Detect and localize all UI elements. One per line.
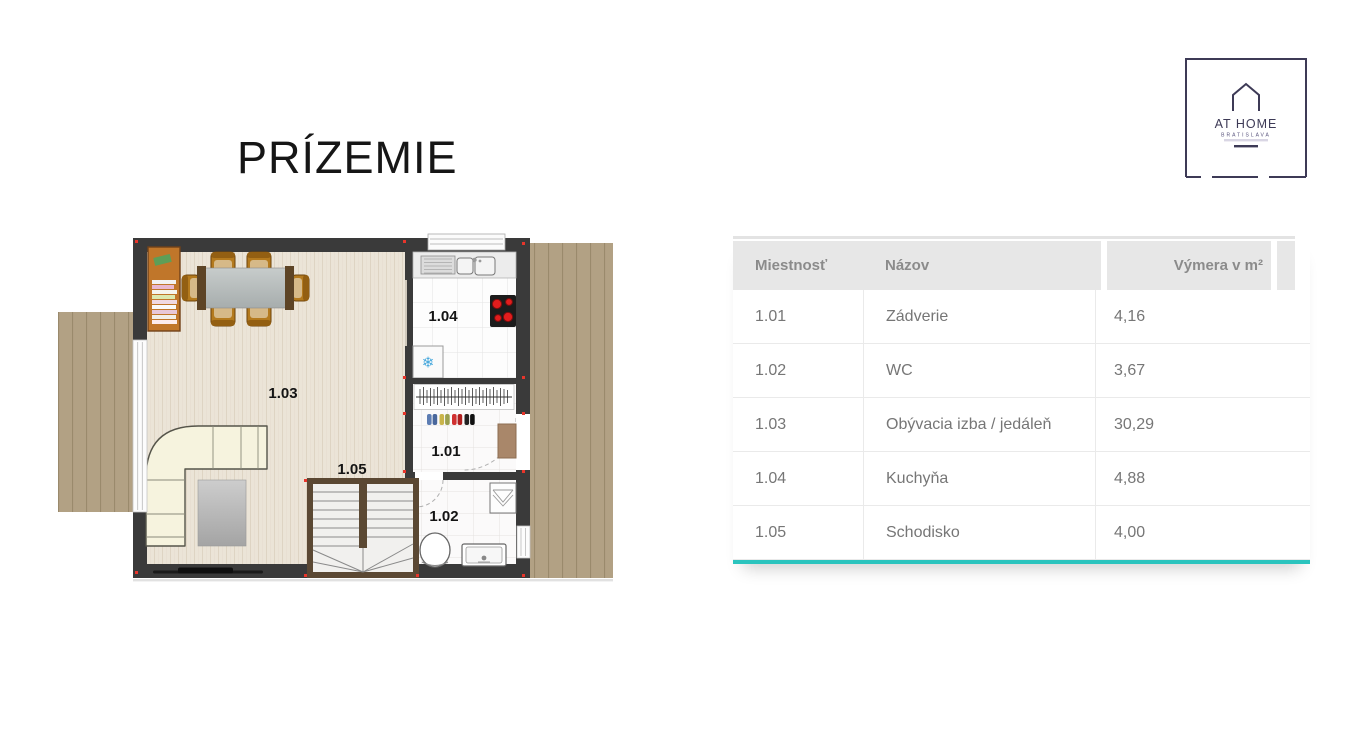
cell-code: 1.05 <box>733 506 863 559</box>
table-accent-line <box>733 560 1310 564</box>
table-header: Miestnosť Názov Výmera v m² <box>733 236 1310 290</box>
cell-name: Obývacia izba / jedáleň <box>863 398 1095 451</box>
staircase: 1.05 <box>307 461 419 578</box>
table-row: 1.04 Kuchyňa 4,88 <box>733 452 1310 506</box>
wardrobe-icon <box>414 385 514 410</box>
table-row: 1.03 Obývacia izba / jedáleň 30,29 <box>733 398 1310 452</box>
floor-seam <box>405 280 407 346</box>
bookshelf <box>148 247 180 331</box>
cell-area: 4,00 <box>1095 506 1310 559</box>
logo-name: AT HOME <box>1215 117 1278 131</box>
cell-area: 30,29 <box>1095 398 1310 451</box>
wc-room: 1.02 <box>413 480 530 567</box>
entry-hall: 1.01 <box>413 384 530 472</box>
cell-name: WC <box>863 344 1095 397</box>
column-header-vymera: Výmera v m² <box>1174 241 1263 290</box>
column-header-nazov: Názov <box>885 241 929 290</box>
svg-text:❄: ❄ <box>422 355 435 372</box>
kitchen-sink <box>421 256 495 275</box>
shadow-line <box>133 579 613 581</box>
table-row: 1.05 Schodisko 4,00 <box>733 506 1310 560</box>
house-icon <box>1233 84 1259 111</box>
table-top-strip <box>733 236 1295 239</box>
cell-name: Zádverie <box>863 290 1095 343</box>
doormat <box>498 424 516 458</box>
room-table: Miestnosť Názov Výmera v m² 1.01 Zádveri… <box>733 236 1310 564</box>
floor-plan: ❄ <box>58 228 613 583</box>
toilet-icon <box>420 533 450 567</box>
terrace-right <box>530 243 613 578</box>
page: PRÍZEMIE AT HOME BRATISLAVA <box>0 0 1350 756</box>
room-label-1-01: 1.01 <box>431 443 460 460</box>
cell-area: 4,88 <box>1095 452 1310 505</box>
stove-icon <box>490 295 516 327</box>
brand-logo: AT HOME BRATISLAVA <box>1185 58 1307 178</box>
room-label-1-04: 1.04 <box>428 308 458 325</box>
window-kitchen <box>428 234 505 250</box>
cell-area: 3,67 <box>1095 344 1310 397</box>
fridge-icon: ❄ <box>413 346 443 378</box>
logo-city: BRATISLAVA <box>1221 133 1271 139</box>
entry-door-opening <box>516 414 530 470</box>
window-left <box>133 340 147 512</box>
table-body: 1.01 Zádverie 4,16 1.02 WC 3,67 1.03 Obý… <box>733 290 1310 560</box>
cell-code: 1.02 <box>733 344 863 397</box>
logo-tagline-bar <box>1224 139 1268 141</box>
wc-window <box>517 526 530 558</box>
table-row: 1.02 WC 3,67 <box>733 344 1310 398</box>
rug <box>198 480 246 546</box>
terrace-left <box>58 312 135 512</box>
room-label-1-03: 1.03 <box>268 385 297 402</box>
cell-area: 4,16 <box>1095 290 1310 343</box>
header-cell-vymera: Výmera v m² <box>1107 241 1271 290</box>
cell-name: Kuchyňa <box>863 452 1095 505</box>
room-label-1-05: 1.05 <box>337 461 366 478</box>
wc-door-opening <box>415 472 443 480</box>
wall-kitchen-top <box>405 252 413 280</box>
logo-underline <box>1234 145 1258 147</box>
room-label-1-02: 1.02 <box>429 508 458 525</box>
brand-logo-frame: AT HOME BRATISLAVA <box>1185 58 1307 178</box>
header-cell-group: Miestnosť Názov <box>733 241 1101 290</box>
kitchen: ❄ <box>405 252 516 384</box>
page-title: PRÍZEMIE <box>237 132 458 184</box>
laundry-basket-icon <box>490 483 516 513</box>
wall-kitchen-bottom <box>405 378 516 384</box>
cell-code: 1.03 <box>733 398 863 451</box>
column-header-miestnost: Miestnosť <box>755 241 827 290</box>
header-cell-spacer <box>1277 241 1295 290</box>
table-row: 1.01 Zádverie 4,16 <box>733 290 1310 344</box>
cell-code: 1.04 <box>733 452 863 505</box>
cell-name: Schodisko <box>863 506 1095 559</box>
wc-sink-icon <box>462 544 506 566</box>
cell-code: 1.01 <box>733 290 863 343</box>
dining-table <box>197 266 294 310</box>
